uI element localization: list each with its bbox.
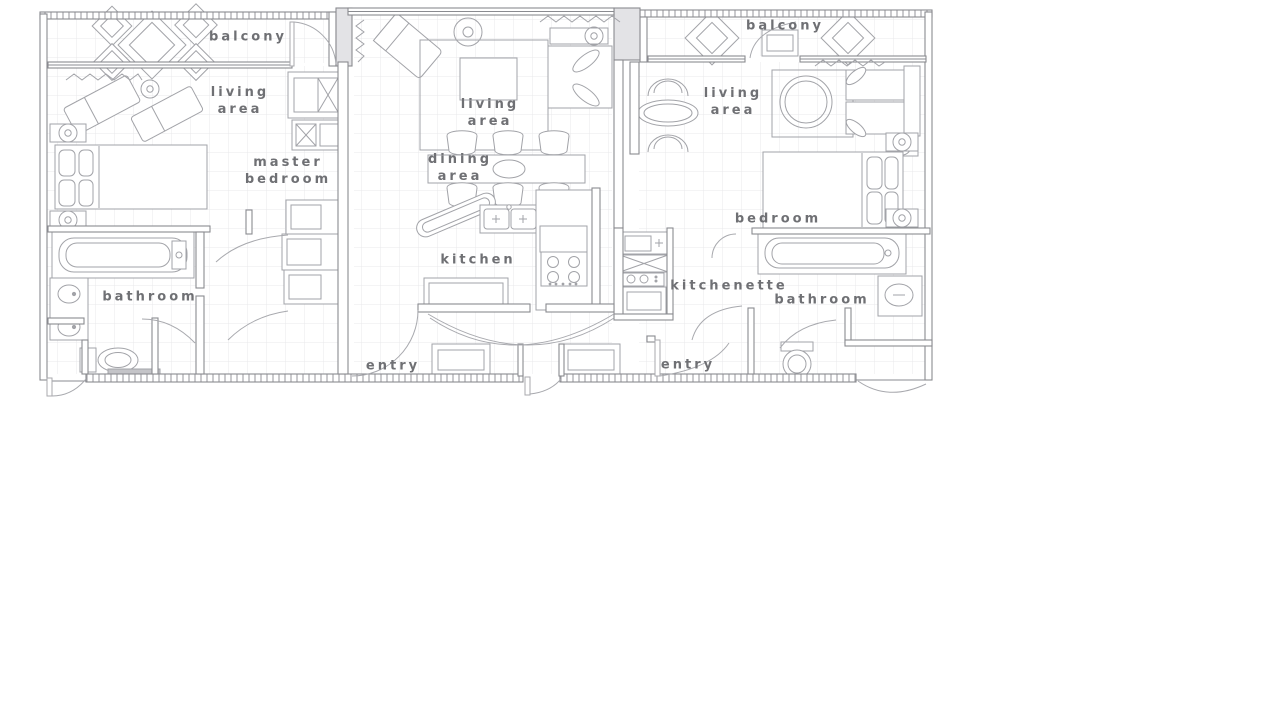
nightstand bbox=[50, 124, 86, 142]
bathtub bbox=[758, 232, 906, 274]
nightstand bbox=[886, 133, 918, 151]
room-label-kitchen: kitchen bbox=[440, 253, 515, 270]
pillow bbox=[59, 180, 75, 206]
coffee-table bbox=[460, 58, 517, 100]
room-label-living-area-right: living area bbox=[698, 86, 768, 120]
kitchenette-sink bbox=[620, 232, 668, 254]
door-leaf bbox=[290, 22, 294, 66]
room-label-dining-area: dining area bbox=[425, 152, 495, 186]
room-label-bathroom-left: bathroom bbox=[102, 290, 197, 307]
room-label-entry-left: entry bbox=[366, 359, 420, 376]
kitchen-counter bbox=[536, 190, 592, 310]
entry-closet bbox=[562, 344, 620, 376]
door-leaf bbox=[525, 377, 530, 395]
kitchenette-cooktop bbox=[620, 273, 664, 286]
room-label-balcony-left: balcony bbox=[209, 30, 287, 47]
kitchenette-cabinet bbox=[620, 255, 668, 272]
side-table bbox=[550, 28, 608, 44]
bathtub bbox=[52, 232, 194, 278]
left-balcony-rail bbox=[40, 12, 336, 19]
room-label-master-bedroom: master bedroom bbox=[242, 155, 334, 189]
kitchen-sink bbox=[480, 205, 538, 233]
vanity-sink bbox=[878, 276, 922, 316]
dining-chair bbox=[493, 131, 523, 155]
pillow bbox=[79, 180, 93, 206]
room-label-balcony-right: balcony bbox=[746, 19, 824, 36]
dining-chair bbox=[539, 131, 569, 155]
master-bed bbox=[55, 145, 207, 209]
nightstand bbox=[886, 209, 918, 227]
door-leaf bbox=[655, 340, 660, 376]
entry-closet bbox=[432, 344, 490, 376]
room-label-kitchenette: kitchenette bbox=[670, 279, 787, 296]
floor-plan-drawing bbox=[0, 0, 1280, 720]
wardrobe-closet bbox=[288, 72, 344, 150]
toilet bbox=[781, 342, 813, 378]
dining-chair bbox=[493, 183, 523, 207]
daybed bbox=[548, 46, 612, 108]
room-label-living-area-center: living area bbox=[455, 97, 525, 131]
floor-plan-screenshot: balcony living area master bedroom bathr… bbox=[0, 0, 1280, 720]
vanity-sinks bbox=[50, 278, 88, 340]
room-label-bathroom-right: bathroom bbox=[774, 293, 869, 310]
sofa bbox=[844, 64, 920, 139]
pillow bbox=[867, 157, 882, 189]
right-balcony-rail bbox=[640, 10, 932, 17]
pillow bbox=[79, 150, 93, 176]
toilet bbox=[80, 348, 138, 372]
stove bbox=[541, 252, 587, 286]
pillow bbox=[867, 192, 882, 224]
kitchenette-fridge bbox=[622, 287, 666, 314]
room-label-entry-right: entry bbox=[661, 358, 715, 375]
pillow bbox=[59, 150, 75, 176]
room-label-bedroom-right: bedroom bbox=[735, 212, 821, 229]
door-leaf bbox=[47, 378, 52, 396]
room-label-living-area-left: living area bbox=[205, 85, 275, 119]
pillow bbox=[885, 157, 898, 189]
dresser bbox=[282, 200, 344, 304]
